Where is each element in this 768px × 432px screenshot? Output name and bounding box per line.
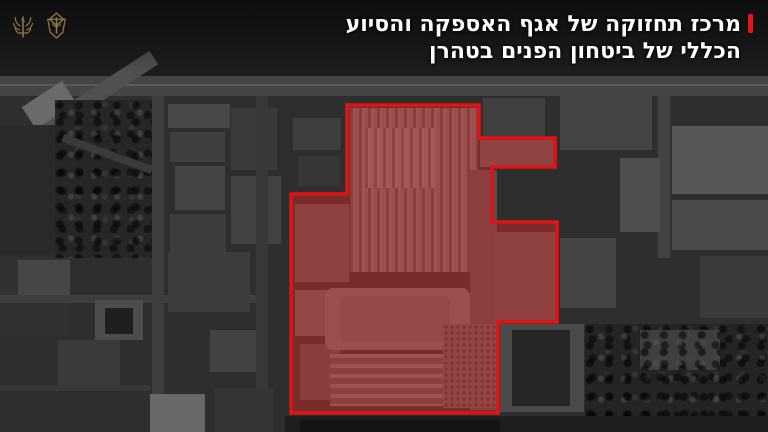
map-feature (168, 252, 250, 312)
map-feature (300, 420, 500, 432)
idf-emblem-icon (44, 11, 69, 40)
map-feature (560, 238, 616, 308)
map-feature (214, 388, 274, 432)
map-feature (150, 394, 205, 432)
map-feature (256, 96, 268, 432)
map-feature (293, 118, 341, 150)
map-feature (0, 125, 55, 255)
map-feature (210, 330, 256, 372)
map-feature (560, 94, 652, 150)
map-feature (672, 200, 768, 250)
headline-accent-bar (748, 14, 753, 33)
map-feature (152, 96, 164, 432)
map-feature (640, 330, 720, 370)
idf-logos (10, 11, 69, 43)
map-feature (480, 140, 553, 167)
map-feature (672, 126, 768, 194)
map-feature (298, 156, 340, 186)
map-feature (231, 108, 277, 170)
headline-text-2: הכללי של ביטחון הפנים בטהרן (346, 38, 753, 65)
map-feature (365, 128, 435, 188)
map-feature (340, 296, 450, 342)
map-feature (175, 166, 225, 210)
signal-corps-emblem-icon (10, 11, 36, 43)
map-feature (0, 385, 150, 391)
headline-text-1: מרכז תחזוקה של אגף האספקה והסיוע (346, 12, 741, 37)
map-feature (105, 308, 133, 334)
headline-line1: מרכז תחזוקה של אגף האספקה והסיוע (346, 11, 753, 38)
map-feature (170, 132, 225, 162)
map-feature (58, 340, 120, 390)
map-feature (168, 104, 230, 128)
map-feature (55, 100, 155, 258)
headline: מרכז תחזוקה של אגף האספקה והסיוע הכללי ש… (346, 11, 753, 65)
map-feature (295, 204, 349, 282)
map-feature (495, 232, 555, 320)
map-feature (620, 158, 660, 232)
map-feature (443, 324, 498, 408)
map-feature (18, 260, 70, 300)
map-feature (512, 330, 570, 406)
satellite-map-view: מרכז תחזוקה של אגף האספקה והסיוע הכללי ש… (0, 0, 768, 432)
map-feature (700, 256, 768, 318)
map-feature (483, 98, 545, 138)
